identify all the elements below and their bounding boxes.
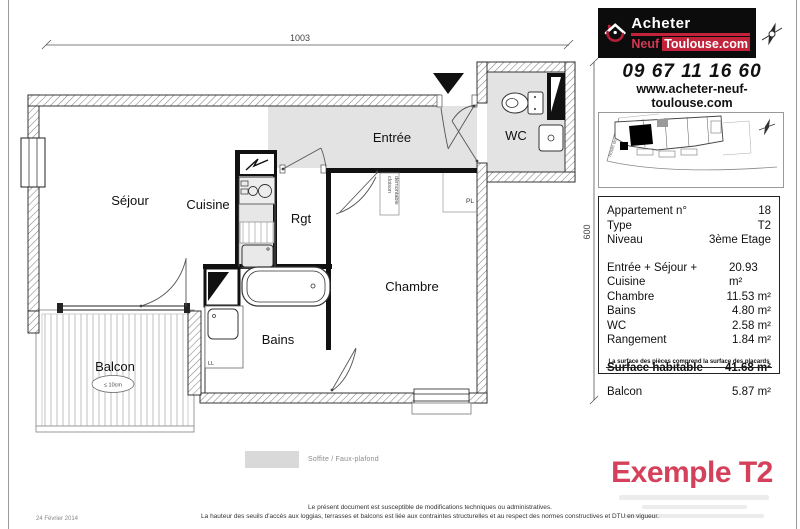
logo-word-acheter: Acheter <box>631 16 750 32</box>
info-row-area: WC 2.58 m² <box>607 319 771 334</box>
info-label: Niveau <box>607 233 643 248</box>
info-row-area: Chambre 11.53 m² <box>607 290 771 305</box>
legend-soffite: Soffite / Faux-plafond <box>245 451 379 468</box>
room-label-rgt: Rgt <box>291 211 312 226</box>
info-value: 18 <box>758 204 771 219</box>
info-footnote: La surface des pièces comprend la surfac… <box>606 359 772 368</box>
pl-label: PL <box>466 198 474 205</box>
site-plan-thumbnail: Route de <box>598 112 784 188</box>
pl-closet: PL <box>443 173 477 212</box>
info-row-area: Bains 4.80 m² <box>607 304 771 319</box>
info-value: 11.53 m² <box>726 290 771 305</box>
room-label-entree: Entrée <box>373 130 411 145</box>
bathtub <box>242 267 330 306</box>
info-row-niveau: Niveau 3ème Etage <box>607 233 771 248</box>
info-row-apartment: Appartement n° 18 <box>607 204 771 219</box>
cloison-demontable: cloison démontable <box>380 173 399 215</box>
disclaimer-line-1: Le présent document est susceptible de m… <box>100 503 760 512</box>
info-value: 2.58 m² <box>732 319 771 334</box>
website-url: www.acheter-neuf-toulouse.com <box>598 82 786 110</box>
info-label: Chambre <box>607 290 654 305</box>
info-label: Appartement n° <box>607 204 687 219</box>
faint-watermark-text <box>619 495 769 500</box>
minimap-compass-icon <box>759 118 775 136</box>
cloison-label-2: démontable <box>393 176 399 205</box>
legend-swatch <box>245 451 299 468</box>
room-label-balcon: Balcon <box>95 359 135 374</box>
info-label: Rangement <box>607 333 666 348</box>
info-row-type: Type T2 <box>607 219 771 234</box>
road-label: Route de <box>607 138 618 157</box>
document-date: 24 Février 2014 <box>36 516 78 522</box>
room-label-chambre: Chambre <box>385 279 438 294</box>
logo-acheter-neuf-toulouse: Acheter Neuf Toulouse.com <box>598 8 756 58</box>
info-row-balcon: Balcon 5.87 m² <box>607 385 771 400</box>
example-title: Exemple T2 <box>598 456 786 490</box>
info-value: T2 <box>758 219 771 234</box>
logo-word-neuf: Neuf <box>631 37 659 51</box>
dimension-height-label: 600 <box>582 224 592 239</box>
entrance-arrow-icon <box>433 73 464 94</box>
ll-label: LL <box>208 361 214 367</box>
info-row-area: Entrée + Séjour + Cuisine 20.93 m² <box>607 261 771 290</box>
logo-stripe <box>631 33 750 36</box>
dimension-width-label: 1003 <box>290 33 310 43</box>
floor-plan: cloison démontable PL LL Séjour Cuisine … <box>0 0 600 500</box>
info-row-area: Rangement 1.84 m² <box>607 333 771 348</box>
info-label: WC <box>607 319 626 334</box>
info-value: 5.87 m² <box>732 385 771 400</box>
phone-number: 09 67 11 16 60 <box>598 61 786 83</box>
disclaimer-line-2: La hauteur des seuils d'accès aux loggia… <box>100 512 760 521</box>
apartment-info-panel: Appartement n° 18 Type T2 Niveau 3ème Et… <box>598 196 780 374</box>
info-label: Bains <box>607 304 636 319</box>
washbasin <box>208 309 238 339</box>
info-label: Balcon <box>607 385 642 400</box>
house-logo-icon <box>604 14 626 52</box>
bathroom-fixtures <box>205 267 330 368</box>
legend-label: Soffite / Faux-plafond <box>308 456 379 463</box>
info-value: 1.84 m² <box>732 333 771 348</box>
cloison-label-1: cloison <box>386 176 392 193</box>
info-value: 3ème Etage <box>709 233 771 248</box>
highlighted-unit <box>629 124 653 146</box>
room-label-wc: WC <box>505 128 527 143</box>
disclaimer: Le présent document est susceptible de m… <box>100 503 760 521</box>
balcony-note: ≤ 10cm <box>92 376 134 393</box>
dimension-width: 1003 <box>42 33 573 49</box>
room-label-cuisine: Cuisine <box>186 197 229 212</box>
room-label-sejour: Séjour <box>111 193 149 208</box>
info-label: Entrée + Séjour + Cuisine <box>607 261 729 290</box>
room-label-bains: Bains <box>262 332 295 347</box>
logo-word-toulouse: Toulouse.com <box>662 37 750 51</box>
toilet-tank <box>528 92 543 114</box>
info-value: 20.93 m² <box>729 261 771 290</box>
info-value: 4.80 m² <box>732 304 771 319</box>
wc-washbasin <box>539 125 563 151</box>
info-label: Type <box>607 219 632 234</box>
sidebar: Acheter Neuf Toulouse.com 09 67 11 16 60… <box>598 8 790 518</box>
compass-rose-icon <box>759 20 785 52</box>
balcony-note-label: ≤ 10cm <box>104 383 122 389</box>
dimension-height: 600 <box>582 58 598 404</box>
